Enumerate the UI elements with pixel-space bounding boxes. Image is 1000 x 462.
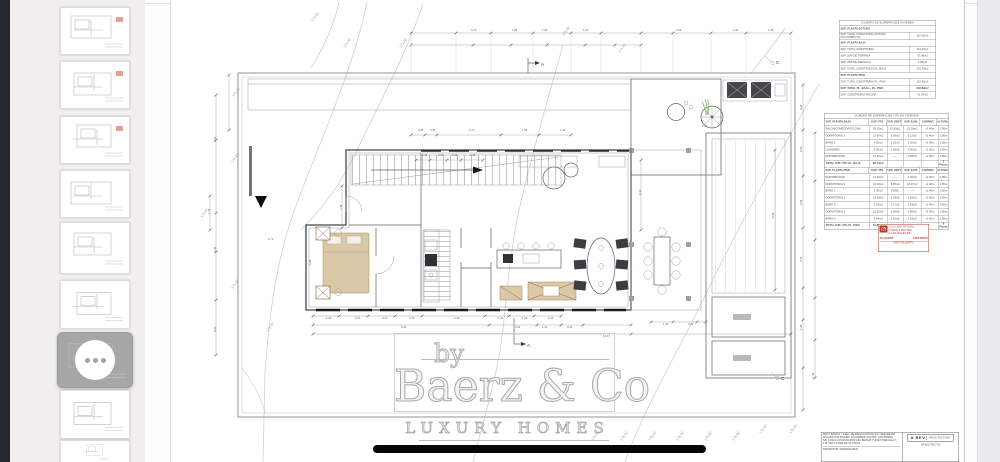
- thumbnail-sketch: [61, 171, 129, 217]
- table-row: TOTAL SUP. ÚTIL PL. BAJA88.14m23 Piezas: [825, 160, 949, 167]
- page-thumbnail-5[interactable]: [60, 222, 130, 274]
- drawing-label: 1.86: [512, 28, 518, 32]
- drawing-label: 0.70: [382, 316, 388, 320]
- page-thumbnail-9[interactable]: [60, 440, 130, 462]
- table-row: SUP. TOTAL CONSTRUIDA SOTANO (NO COMPUTA…: [840, 33, 936, 41]
- drawing-label: 175.20: [618, 43, 627, 54]
- drawing-label: 1.00: [326, 316, 332, 320]
- drawing-label: 175.40: [232, 87, 241, 98]
- drawing-label: 175.00: [266, 322, 275, 333]
- thumbnail-sketch: [61, 223, 129, 273]
- drawing-label: 0.70: [355, 316, 361, 320]
- drawing-label: 176.40: [676, 431, 685, 442]
- project-line: T.M. SANT JOSEP DE SA TALAIA: [823, 443, 901, 446]
- drawing-label: 2.40: [422, 153, 428, 157]
- thumbnail-sidebar[interactable]: [10, 0, 146, 462]
- drawing-label: 9.20: [401, 325, 407, 329]
- table-row: BAÑO 35.03m21.17m21.63m2+1.40m2.85m: [825, 202, 949, 209]
- drawing-label: 0.35: [567, 325, 573, 329]
- page-thumbnail-6[interactable]: [60, 280, 130, 329]
- drawing-label: 1.90: [542, 28, 548, 32]
- drawing-label: 6.30: [213, 326, 217, 332]
- firm-divider: [927, 436, 928, 440]
- table-row: DORMITORIO 416.25m22.46m24.85m2+2.40m2.8…: [825, 209, 949, 216]
- thumbnail-sketch: [61, 281, 129, 328]
- stamp-logo: [880, 226, 888, 233]
- loading-spinner: [75, 340, 115, 380]
- table-row: DORMITORIO 224.36m28.05m216.07m2+2.40m2.…: [825, 181, 949, 188]
- architect-role: ARQUITECTO: [921, 444, 941, 447]
- drawing-label: 2.45: [470, 153, 476, 157]
- table-row: BAÑO 25.36m2FORZ.------+1.40m2.85m: [825, 188, 949, 195]
- drawing-label: 4.30: [638, 189, 642, 195]
- stamp-org-line3: ILLES BALEARS: [889, 232, 915, 235]
- drawing-label: 3.30: [515, 325, 521, 329]
- drawing-label: 6.30: [771, 212, 775, 218]
- architects-college-stamp: COL·LEGI OFICIAL D'ARQUITECTES ILLES BAL…: [878, 224, 929, 252]
- table-row: SUP. PLANTA BAJASUP. ÚTILSUP. VENTSUP. I…: [825, 119, 949, 126]
- drawing-label: 2.40: [583, 28, 589, 32]
- redaction-bar: [373, 445, 706, 453]
- table-row: DISTRIBUIDOR12.40m2------4.36m2+1.20m2.8…: [825, 174, 949, 181]
- page-thumbnail-3[interactable]: [60, 116, 130, 164]
- page-thumbnail-1[interactable]: [60, 7, 130, 55]
- drawing-label: 175.40: [759, 424, 768, 435]
- stamp-footer: VISAT TELEMÀTIC: [880, 241, 928, 245]
- drawing-label: 1.35: [799, 324, 803, 330]
- drawing-label: 2.75: [799, 256, 803, 262]
- drawing-label: 3.30: [213, 136, 217, 142]
- drawing-label: 175.80: [562, 26, 571, 37]
- drawing-label: 4.35: [799, 104, 803, 110]
- drawing-label: 0.35: [799, 146, 803, 152]
- firm-name: A REV: [911, 436, 926, 441]
- drawing-label: 0.70: [409, 316, 415, 320]
- firm-logo-box: A REV ARCHITECTURE: [908, 434, 954, 442]
- drawing-label: 0.45: [430, 128, 436, 132]
- table-row: SUP. CONSTRUIDA PISCINA41.78m2: [840, 92, 936, 98]
- drawing-label: 176.40: [789, 424, 798, 435]
- drawing-label: 14.47: [603, 334, 610, 338]
- drawing-label: 4.70: [471, 28, 477, 32]
- drawing-label: 2.45: [213, 246, 217, 252]
- drawing-label: 0.45: [452, 153, 458, 157]
- table-row: SALON/COMEDOR/COCINA55.15m213.83m223.05m…: [825, 126, 949, 133]
- thumbnail-sketch: [61, 441, 129, 462]
- drawing-label: 0.45: [418, 128, 424, 132]
- title-block: PROY. BASICO Y EJEC. DE AMPLIACION DE VI…: [821, 432, 959, 462]
- window-edge-strip: [0, 0, 10, 462]
- drawing-label: 1.35: [768, 28, 774, 32]
- drawing-label: 2.43: [688, 322, 694, 326]
- drawing-label: 0.44: [548, 316, 554, 320]
- drawing-label: 175.40: [591, 431, 600, 442]
- drawing-label: 4.70: [469, 128, 475, 132]
- drawing-label: 2.40: [438, 153, 444, 157]
- drawing-label: 1.95: [522, 128, 528, 132]
- stamp-date: 13.10.2023: [880, 237, 894, 240]
- drawing-label: 176.60: [704, 431, 713, 442]
- thumbnail-sketch: [61, 117, 129, 163]
- table-row: DORMITORIO 313.39m22.34m23.84m2+2.40m2.8…: [825, 195, 949, 202]
- drawing-label: 2.44: [702, 124, 708, 128]
- page-thumbnail-7[interactable]: [57, 332, 133, 388]
- drawing-label: 1.36: [339, 204, 343, 210]
- page-thumbnail-4[interactable]: [60, 170, 130, 218]
- drawing-label: 176.20: [620, 431, 629, 442]
- drawing-label: 3.58: [308, 259, 312, 265]
- thumbnail-sketch: [61, 391, 129, 438]
- drawing-label: 175.20: [343, 38, 352, 49]
- table-row: SUP. PLANTA PISOSUP. ÚTILSUP. VENTSUP. I…: [825, 167, 949, 174]
- drawing-label: 1.74: [268, 237, 274, 241]
- dimension-labels: 4.701.861.902.404.352.441.350.450.454.70…: [200, 12, 815, 442]
- drawing-label: 176.20: [648, 431, 657, 442]
- drawing-page: 4.701.861.902.404.352.441.350.450.454.70…: [170, 0, 965, 462]
- document-viewer: 4.701.861.902.404.352.441.350.450.454.70…: [145, 0, 1000, 462]
- promotor-line: PROMOTOR: PEDRAM MIUN: [823, 447, 901, 451]
- thumbnail-sketch: [61, 62, 129, 108]
- drawing-label: 1.45: [560, 128, 566, 132]
- pdf-viewer-window: 4.701.861.902.404.352.441.350.450.454.70…: [0, 0, 1000, 462]
- drawing-label: 2.50: [799, 199, 803, 205]
- drawing-label: 176.80: [732, 431, 741, 442]
- page-thumbnail-8[interactable]: [60, 390, 130, 439]
- page-thumbnail-2[interactable]: [60, 61, 130, 109]
- table-row: LAVADERO5.35m22.45m24.90m2+1.05m2.85m: [825, 147, 949, 154]
- drawing-label: 1.10: [498, 316, 504, 320]
- drawing-label: 1.40: [542, 325, 548, 329]
- section-marker-label: C: [781, 376, 785, 381]
- table-row: DISTRIBUIDOR10.52m2-----4.06m2+1.05m2.85…: [825, 153, 949, 160]
- drawing-label: 4.35: [676, 28, 682, 32]
- drawing-label: 174.00: [311, 12, 320, 23]
- drawing-label: 1.45: [811, 372, 815, 378]
- section-marker-label: A: [527, 343, 531, 348]
- drawing-label: 1.00: [522, 316, 528, 320]
- table-row: BAÑO 45.04m21.15m21.63m2+1.40m2.85m: [825, 216, 949, 223]
- drawing-label: 2.44: [733, 28, 739, 32]
- drawing-label: 2.33: [454, 316, 460, 320]
- stamp-number: 12614/2023: [913, 237, 928, 240]
- section-marker-label: C: [776, 60, 780, 65]
- thumbnail-sketch: [61, 8, 129, 54]
- section-marker-label: A: [541, 62, 545, 67]
- table-row: BAÑO 14.25m21.02m21.02m2+1.40m2.85m: [825, 140, 949, 147]
- drawing-label: 1.40: [663, 322, 669, 326]
- viewer-right-gutter: [977, 0, 1000, 462]
- table-row: DORMITORIO 112.87m23.06m26.12m2+2.40m2.8…: [825, 133, 949, 140]
- firm-suffix: ARCHITECTURE: [929, 437, 951, 440]
